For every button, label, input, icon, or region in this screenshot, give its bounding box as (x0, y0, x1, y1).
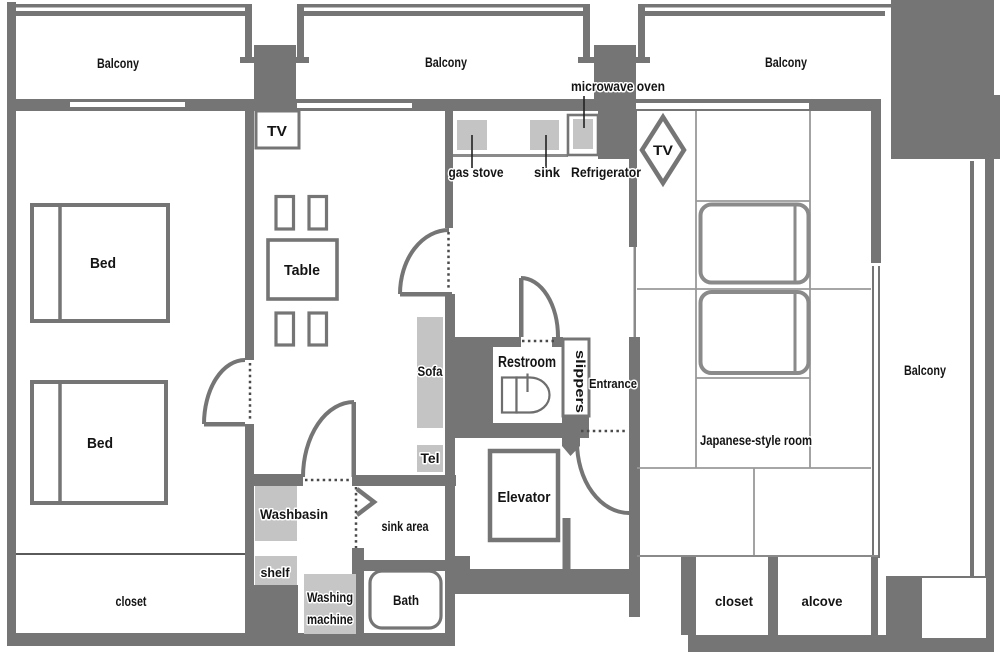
svg-text:sink area: sink area (382, 519, 429, 534)
svg-text:microwave oven: microwave oven (571, 79, 665, 94)
svg-text:Entrance: Entrance (589, 377, 637, 391)
svg-text:slippers: slippers (573, 350, 588, 413)
svg-text:Japanese-style room: Japanese-style room (700, 432, 812, 448)
svg-text:Restroom: Restroom (498, 354, 556, 371)
svg-text:Washbasin: Washbasin (260, 506, 328, 522)
svg-text:Balcony: Balcony (765, 55, 807, 70)
svg-text:Bath: Bath (393, 592, 419, 608)
svg-text:sink: sink (534, 165, 560, 180)
svg-text:closet: closet (116, 594, 147, 609)
svg-text:Bed: Bed (90, 255, 116, 272)
svg-text:Balcony: Balcony (904, 363, 946, 378)
svg-text:machine: machine (307, 612, 353, 627)
svg-text:Sofa: Sofa (418, 364, 443, 379)
svg-text:closet: closet (715, 594, 753, 609)
svg-text:alcove: alcove (802, 594, 843, 609)
svg-text:Washing: Washing (307, 590, 353, 605)
svg-text:Tel: Tel (421, 451, 440, 466)
svg-text:Bed: Bed (87, 435, 113, 452)
svg-text:Refrigerator: Refrigerator (571, 165, 642, 180)
svg-text:TV: TV (267, 123, 287, 140)
svg-text:TV: TV (653, 142, 674, 158)
svg-text:Elevator: Elevator (498, 490, 551, 506)
svg-text:Balcony: Balcony (425, 55, 467, 70)
svg-text:gas stove: gas stove (449, 165, 504, 180)
svg-text:shelf: shelf (261, 566, 291, 580)
svg-text:Balcony: Balcony (97, 56, 139, 71)
svg-text:Table: Table (284, 263, 320, 279)
